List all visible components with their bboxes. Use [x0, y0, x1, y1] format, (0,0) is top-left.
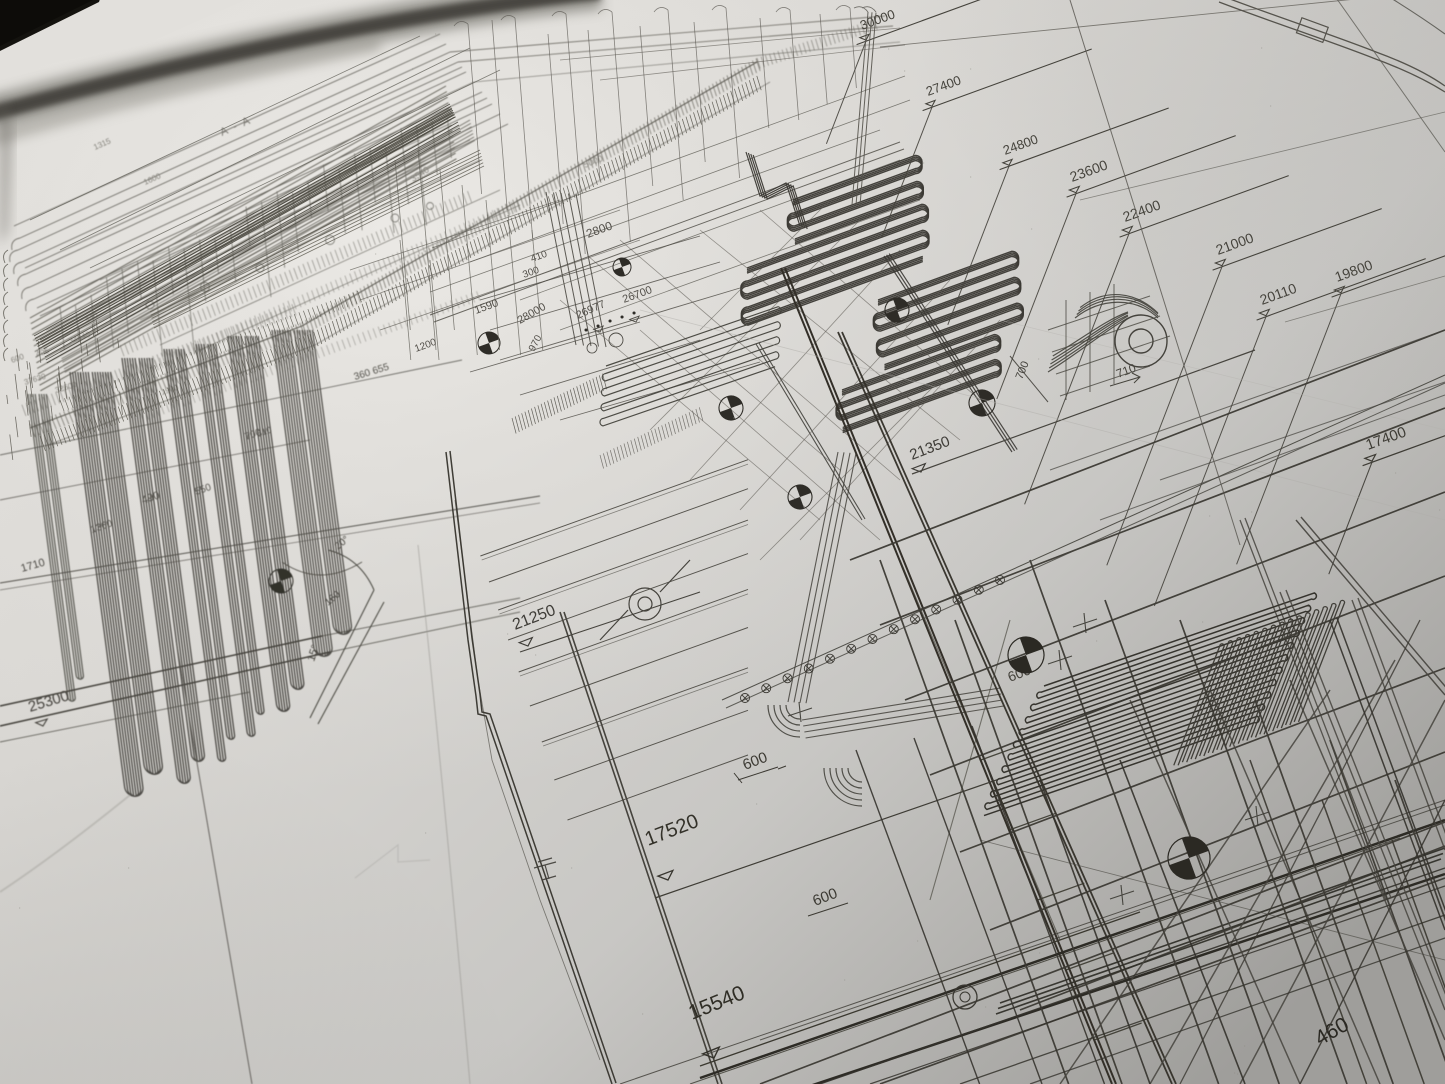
svg-text:21250: 21250	[0, 0, 3, 1]
